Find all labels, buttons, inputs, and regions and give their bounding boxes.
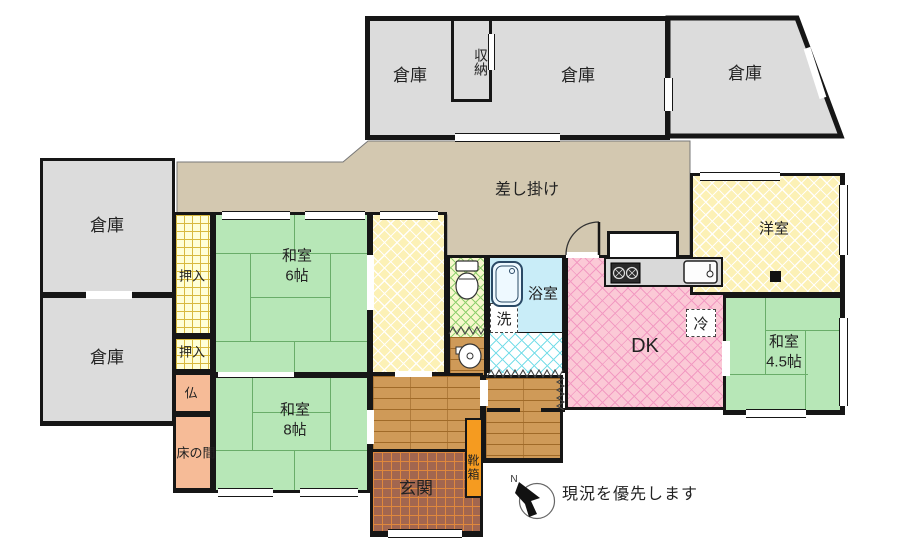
closet-storage-label: 収納 <box>453 26 491 98</box>
storage-label: 倉庫 <box>90 347 124 369</box>
sliding-door-opening <box>367 255 374 310</box>
storage-label: 倉庫 <box>561 65 595 87</box>
tatami-line <box>216 450 367 451</box>
room-size: 4.5帖 <box>766 352 802 372</box>
hall-right <box>483 375 563 463</box>
wall-segment <box>451 99 492 102</box>
sliding-door-opening <box>367 410 374 444</box>
storage-side-opening <box>664 78 673 111</box>
window <box>222 211 290 220</box>
corridor <box>370 212 447 375</box>
door-opening <box>722 341 730 376</box>
fusuma-opening <box>218 372 294 377</box>
window <box>839 185 848 255</box>
tatami-line <box>216 341 367 342</box>
room-name: 和室 <box>282 247 312 267</box>
dk-label: DK <box>631 333 659 359</box>
door-opening <box>395 371 432 377</box>
western-room-label: 洋室 <box>759 219 789 239</box>
dk-door-opening <box>566 252 599 258</box>
entrance-door <box>388 529 462 538</box>
storage-label: 倉庫 <box>728 63 762 85</box>
window <box>839 318 848 406</box>
hall-door-opening <box>480 380 488 406</box>
tatami-line <box>294 450 295 490</box>
laundry-label: 洗 <box>496 308 511 329</box>
tatami-line <box>252 378 253 450</box>
toilet-room <box>447 255 487 337</box>
butsudan-label: 仏 <box>184 386 197 403</box>
lean-to-label: 差し掛け <box>495 181 559 202</box>
room-name: 和室 <box>280 401 310 421</box>
japanese-room-8-label: 和室 8帖 <box>280 401 310 440</box>
note-text: 現況を優先します <box>562 480 698 504</box>
storage-bottom-opening <box>455 133 560 142</box>
storage-left-opening <box>86 291 132 299</box>
window <box>700 172 780 181</box>
kitchen-bay <box>607 231 679 257</box>
wall-segment <box>541 408 565 412</box>
refrigerator-space: 冷 <box>686 309 716 337</box>
fridge-label: 冷 <box>693 313 708 334</box>
kitchen-counter <box>604 257 723 287</box>
wall-segment <box>487 408 520 412</box>
closet-label: 押入 <box>179 345 205 362</box>
window <box>380 211 438 220</box>
tatami-line <box>294 341 295 372</box>
closet-label: 押入 <box>179 269 205 286</box>
room-size: 6帖 <box>282 266 312 286</box>
room-size: 8帖 <box>280 420 310 440</box>
tatami-line <box>250 297 330 298</box>
pillar <box>770 271 781 282</box>
tatami-line <box>726 374 808 375</box>
tokonoma-label: 床の間 <box>176 446 215 463</box>
window <box>746 409 806 418</box>
japanese-room-45-label: 和室 4.5帖 <box>766 333 802 372</box>
storage-label: 倉庫 <box>90 215 124 237</box>
window <box>305 211 365 220</box>
storage-label: 倉庫 <box>393 65 427 87</box>
japanese-room-6 <box>213 212 370 375</box>
tatami-line <box>330 253 331 341</box>
window <box>300 488 358 497</box>
laundry-space: 洗 <box>490 303 518 333</box>
washroom-passage <box>447 337 487 375</box>
floor-plan: 洗 冷 倉庫 収納 倉庫 倉庫 倉庫 倉庫 差し掛け 押入 押入 <box>0 0 897 553</box>
room-name: 和室 <box>766 333 802 353</box>
bathroom-label: 浴室 <box>528 284 558 304</box>
tatami-line <box>330 378 331 450</box>
japanese-room-6-label: 和室 6帖 <box>282 247 312 286</box>
tatami-line <box>765 330 842 331</box>
window <box>218 488 273 497</box>
washroom <box>487 333 565 373</box>
tatami-line <box>805 330 806 412</box>
shoe-box-label: 靴箱 <box>466 440 482 496</box>
entrance-label: 玄関 <box>399 478 433 500</box>
